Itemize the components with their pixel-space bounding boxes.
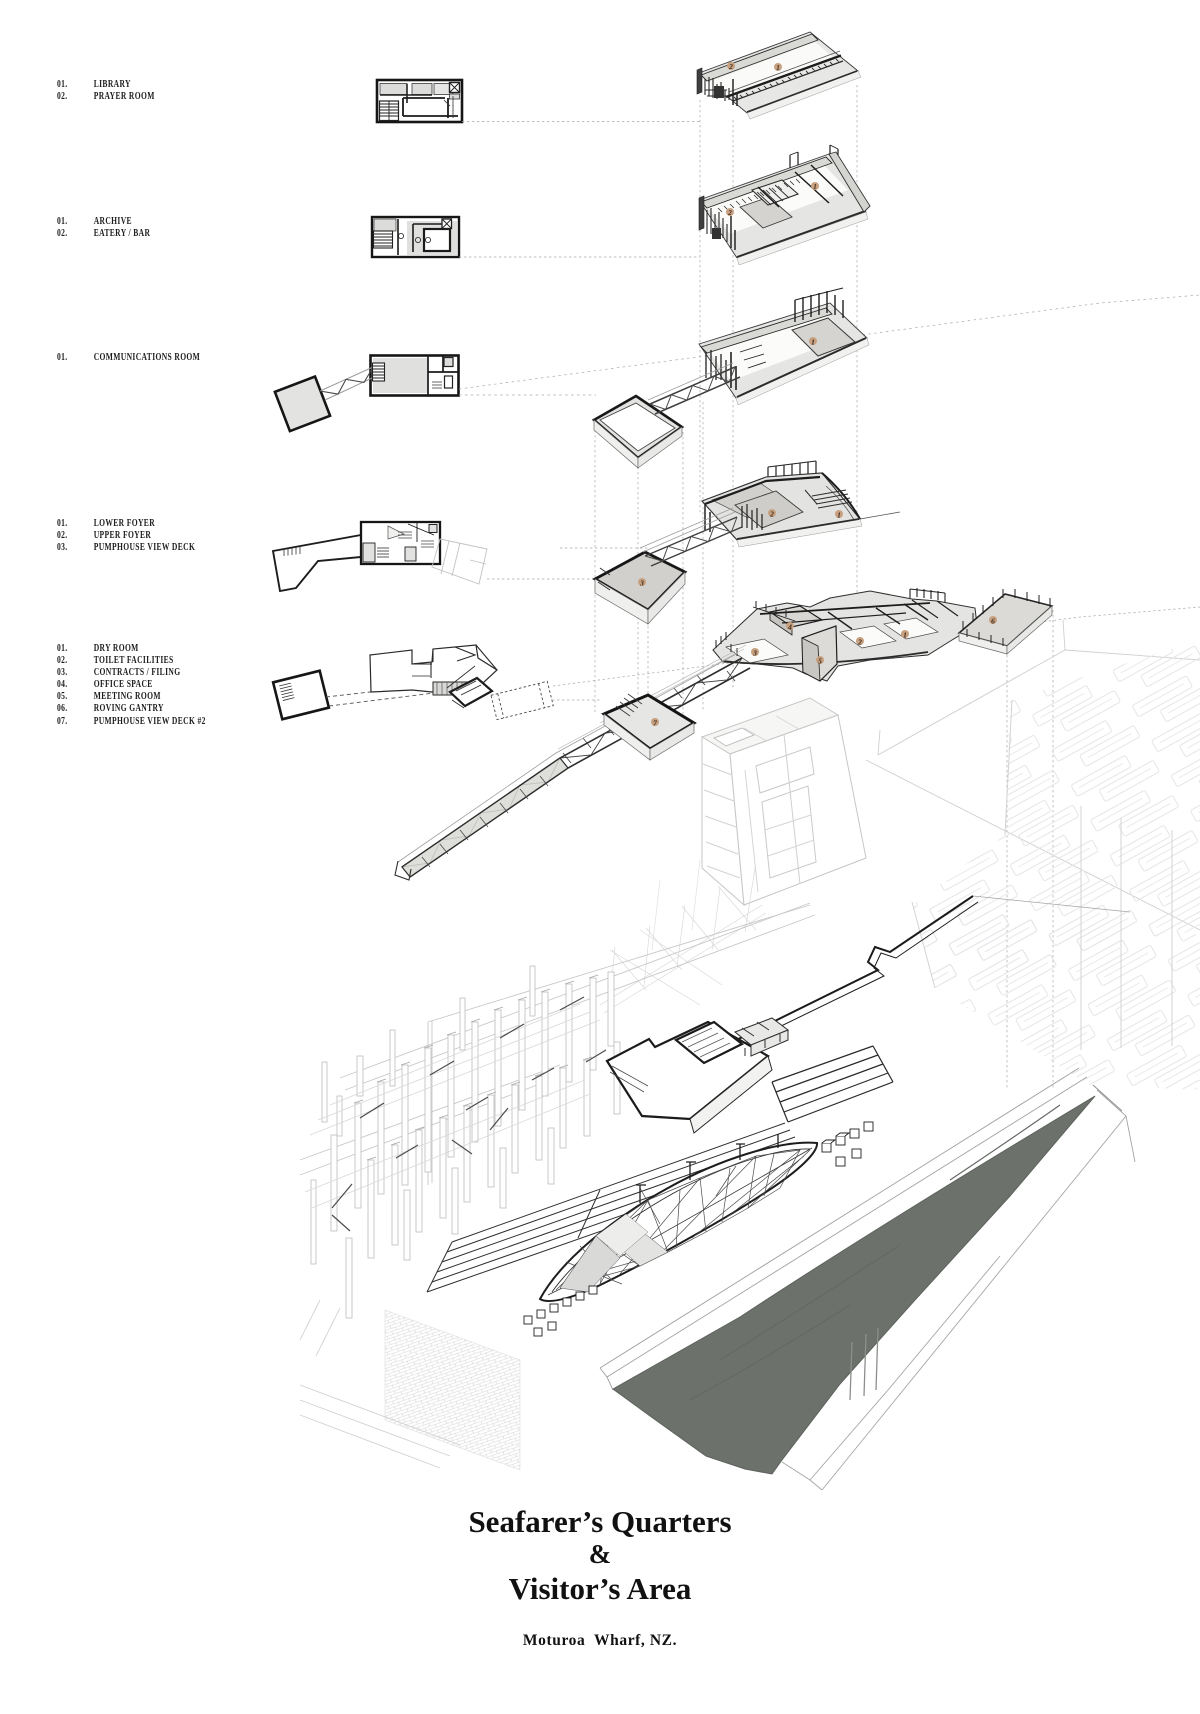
svg-text:3: 3 — [752, 648, 757, 657]
svg-text:2: 2 — [857, 637, 862, 646]
svg-text:1: 1 — [903, 630, 907, 639]
svg-text:2: 2 — [728, 62, 733, 71]
svg-text:3: 3 — [639, 578, 644, 587]
svg-text:1: 1 — [776, 63, 780, 72]
svg-text:5: 5 — [818, 656, 822, 665]
svg-text:1: 1 — [837, 510, 841, 519]
svg-text:7: 7 — [653, 718, 657, 727]
svg-text:2: 2 — [769, 509, 774, 518]
svg-text:4: 4 — [787, 622, 792, 631]
svg-text:1: 1 — [811, 337, 815, 346]
svg-text:6: 6 — [991, 616, 995, 625]
svg-text:2: 2 — [727, 208, 732, 217]
svg-text:1: 1 — [813, 182, 817, 191]
